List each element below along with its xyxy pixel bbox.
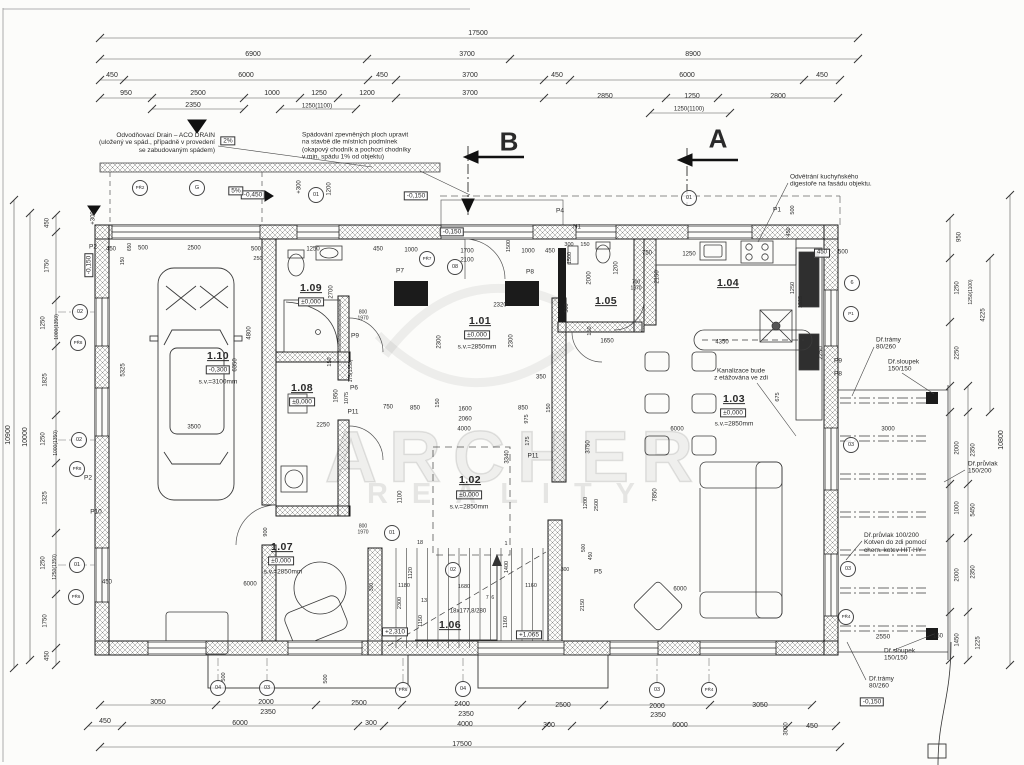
- dim-label: 950: [957, 232, 964, 242]
- axis-marker: PŘ6: [395, 682, 411, 698]
- dim-label: 2000: [955, 441, 962, 454]
- dim-label: 2300: [437, 335, 444, 348]
- dim-label: 6000: [238, 72, 254, 80]
- dim-label: s.v.=2850mm: [715, 420, 754, 427]
- dim-label: ±0,000: [289, 397, 315, 406]
- axis-marker: 6: [844, 275, 860, 291]
- dim-label: 1250: [41, 316, 48, 329]
- dim-label: 13: [421, 598, 427, 604]
- dim-label: 450: [99, 718, 111, 726]
- dim-label: N1: [573, 225, 581, 232]
- dim-label: 2350: [185, 102, 201, 110]
- dim-label: 17500: [468, 30, 487, 38]
- room-1-10: 1.10: [207, 351, 229, 363]
- dim-label: 450: [589, 552, 595, 560]
- dim-label: 1600: [458, 407, 471, 414]
- dim-label: 850: [410, 406, 420, 413]
- dim-label: 1250: [311, 90, 327, 98]
- dim-label: 150: [327, 357, 333, 366]
- dim-label: 5450: [971, 503, 978, 516]
- axis-marker: 03: [649, 682, 665, 698]
- dim-label: 6000: [672, 722, 688, 730]
- dim-label: 2320: [493, 303, 506, 310]
- dim-label: 3000: [881, 427, 894, 434]
- dim-label: P11: [347, 408, 358, 415]
- elevation-mark: -0,300: [206, 365, 230, 374]
- room-1-01: 1.01: [469, 316, 491, 328]
- dim-label: 350: [536, 375, 546, 382]
- dim-label: 1250(1100): [302, 104, 332, 111]
- axis-marker: P1: [843, 306, 859, 322]
- dim-label: 150: [580, 242, 589, 248]
- dim-label: 1250(1350): [53, 554, 59, 580]
- dim-label: 1000: [404, 248, 417, 255]
- dim-label: 1000: [521, 249, 534, 256]
- dim-label: 3050: [752, 702, 768, 710]
- dim-label: 10900: [5, 425, 13, 444]
- dim-label: 950: [120, 90, 132, 98]
- dim-label: 2300: [509, 334, 516, 347]
- dim-label: 2250: [819, 346, 826, 359]
- dim-label: 1325: [798, 296, 804, 308]
- axis-marker: PŘ4: [701, 682, 717, 698]
- room-1-09: 1.09: [300, 283, 322, 295]
- dim-label: 2400: [454, 701, 470, 709]
- dim-label: 675: [775, 392, 781, 401]
- dim-label: 1700: [460, 249, 473, 256]
- dim-label: 2250: [955, 346, 962, 359]
- room-1-05: 1.05: [595, 296, 617, 308]
- slope-mark: 5%: [228, 186, 243, 195]
- dim-label: 450: [102, 580, 112, 587]
- dim-label: P8: [526, 268, 534, 275]
- dim-label: 1750: [43, 614, 50, 627]
- dim-label: 750: [383, 405, 393, 412]
- dim-label: 1500: [506, 240, 512, 252]
- dim-label: 2000: [258, 699, 274, 707]
- dim-label: 2500: [555, 702, 571, 710]
- dim-label: 2850: [597, 93, 613, 101]
- dim-label: 800 1970: [357, 524, 368, 535]
- dim-label: 500: [221, 672, 227, 681]
- note-post-bottom: Dř.sloupek 150/150: [884, 648, 915, 663]
- dim-label: 1225: [976, 636, 983, 649]
- dim-label: 6000: [243, 582, 256, 589]
- dim-label: 650: [128, 243, 134, 251]
- dim-label: 750: [642, 251, 652, 258]
- floor-plan-page: 1750069003700890045060004503700450600045…: [0, 0, 1024, 765]
- dim-label: 3700: [462, 90, 478, 98]
- dim-label: 2150: [655, 270, 662, 283]
- dim-label: 500: [838, 250, 848, 257]
- dim-label: 3050: [150, 699, 166, 707]
- dim-label: 450: [816, 72, 828, 80]
- axis-marker: PŘ2: [132, 180, 148, 196]
- axis-marker: 01: [681, 190, 697, 206]
- room-1-06: 1.06: [439, 620, 461, 632]
- dim-label: 10800: [998, 430, 1006, 449]
- dim-label: 2500: [351, 700, 367, 708]
- axis-marker: PŘ6: [68, 589, 84, 605]
- dim-label: 4350: [715, 340, 728, 347]
- dim-label: 7 6: [486, 596, 494, 602]
- dim-label: 1000(1350): [55, 314, 61, 340]
- dim-label: 1160: [525, 583, 537, 589]
- dim-label: 450: [106, 72, 118, 80]
- axis-marker: 04: [210, 680, 226, 696]
- dim-label: 150: [587, 326, 593, 335]
- elevation-mark: -0,150: [404, 191, 428, 200]
- dim-label: 500: [323, 674, 329, 683]
- dim-label: s.v.=2850mm: [458, 343, 497, 350]
- dim-label: 1120: [408, 567, 414, 579]
- dim-label: s.v.=2850mm: [264, 568, 303, 575]
- dim-label: 1200: [359, 90, 375, 98]
- label-layer: 1750069003700890045060004503700450600045…: [0, 0, 1024, 765]
- note-paving: Spádování zpevněných ploch upravit na st…: [302, 131, 411, 160]
- dim-label: 10000: [22, 427, 30, 446]
- axis-marker: 03: [843, 437, 859, 453]
- dim-label: 6900: [245, 51, 261, 59]
- section-b-letter: B: [500, 127, 519, 156]
- dim-label: P6: [350, 384, 358, 391]
- dim-label: 2800: [770, 93, 786, 101]
- dim-label: 2500: [187, 246, 200, 253]
- dim-label: 1400: [504, 561, 510, 573]
- dim-label: 2500: [190, 90, 206, 98]
- dim-label: 5325: [121, 363, 128, 376]
- axis-marker: PŘ8: [69, 461, 85, 477]
- elevation-mark: -0,450: [241, 190, 265, 199]
- dim-label: 450: [786, 227, 792, 236]
- dim-label: 450: [45, 651, 52, 661]
- dim-label: 500: [564, 303, 570, 312]
- dim-label: 1200: [327, 182, 334, 195]
- dim-label: P7: [396, 267, 404, 274]
- dim-label: 450: [806, 723, 818, 731]
- dim-label: P1: [773, 206, 781, 213]
- dim-label: 175(1350): [349, 360, 355, 383]
- dim-label: P8: [834, 370, 842, 377]
- axis-marker: 01: [308, 187, 324, 203]
- dim-label: 6000: [679, 72, 695, 80]
- dim-label: 1250: [41, 556, 48, 569]
- dim-label: 1250: [682, 252, 695, 259]
- dim-label: 2700: [329, 285, 336, 298]
- dim-label: 450: [106, 247, 116, 254]
- dim-label: 1680: [458, 584, 470, 590]
- dim-label: 2550: [876, 633, 890, 640]
- room-1-04: 1.04: [717, 278, 739, 290]
- note-beams-top: Dř.trámy 80/260: [876, 337, 901, 352]
- dim-label: 500: [582, 544, 588, 552]
- elevation-mark: -0,150: [860, 697, 884, 706]
- axis-marker: 01: [69, 557, 85, 573]
- slope-mark: 2%: [220, 136, 235, 145]
- dim-label: P5: [594, 568, 602, 575]
- dim-label: 17500: [452, 741, 471, 749]
- dim-label: 300: [543, 722, 555, 730]
- dim-label: 1: [504, 541, 507, 547]
- dim-label: +300: [297, 180, 304, 194]
- dim-label: 6000: [232, 720, 248, 728]
- dim-label: 2350: [971, 565, 978, 578]
- dim-label: 500: [790, 205, 796, 214]
- dim-label: P9: [834, 357, 842, 364]
- dim-label: 3000: [784, 722, 791, 735]
- watermark-text: REALITY: [367, 478, 659, 510]
- dim-label: 1180: [398, 583, 410, 589]
- dim-label: 2000: [955, 568, 962, 581]
- axis-marker: 01: [384, 525, 400, 541]
- section-a-letter: A: [709, 124, 728, 153]
- dim-label: 800 1970: [357, 310, 368, 321]
- dim-label: 1000(1350): [54, 430, 60, 456]
- dim-label: 2150: [580, 599, 586, 611]
- dim-label: 1250: [306, 247, 319, 254]
- dim-label: 2350: [260, 709, 276, 717]
- dim-label: 150: [435, 398, 441, 407]
- dim-label: 2000: [649, 703, 665, 711]
- dim-label: 4800: [247, 326, 254, 339]
- dim-label: 4225: [981, 308, 988, 321]
- dim-label: 18: [417, 540, 423, 546]
- dim-label: 1950: [334, 389, 341, 402]
- dim-label: P4: [556, 207, 564, 214]
- dim-label: 1450: [955, 633, 962, 646]
- dim-label: 3700: [459, 51, 475, 59]
- dim-label: 1150: [418, 615, 424, 627]
- dim-label: 150: [933, 634, 943, 641]
- dim-label: 2350: [458, 711, 474, 719]
- dim-label: 450: [545, 249, 555, 256]
- note-post-top: Dř.sloupek 150/150: [888, 359, 919, 374]
- dim-label: 500: [251, 247, 261, 254]
- note-beams-bottom: Dř.trámy 80/260: [869, 676, 894, 691]
- dim-label: ±0,000: [464, 330, 490, 339]
- note-kitchen-vent: Odvětrání kuchyňského digestoře na fasád…: [790, 174, 872, 189]
- dim-label: 1250: [684, 93, 700, 101]
- dim-label: 1000: [955, 501, 962, 514]
- dim-label: 1250(1100): [674, 107, 704, 114]
- axis-marker: 03: [259, 680, 275, 696]
- dim-label: ±0,000: [720, 408, 746, 417]
- dim-label: P2: [84, 474, 92, 481]
- dim-label: P10: [90, 508, 102, 515]
- dim-label: 300: [564, 242, 573, 248]
- dim-label: 450: [551, 72, 563, 80]
- dim-label: 250: [253, 256, 262, 262]
- dim-label: s.v.=3100mm: [199, 378, 238, 385]
- dim-label: P2: [89, 243, 97, 250]
- dim-label: 300: [561, 568, 569, 574]
- dim-label: 1500: [567, 252, 573, 264]
- dim-label: 300: [365, 720, 377, 728]
- dim-label: 1000: [264, 90, 280, 98]
- dim-label: 1250: [41, 432, 48, 445]
- room-1-03: 1.03: [723, 394, 745, 406]
- dim-label: 150: [546, 403, 552, 412]
- dim-label: 1825: [43, 373, 50, 386]
- elevation-mark: +2,310: [382, 627, 408, 636]
- elevation-mark: -0,150: [84, 253, 93, 277]
- elevation-mark: -0,150: [440, 227, 464, 236]
- dim-label: 450: [814, 249, 830, 258]
- dim-label: 850: [518, 406, 528, 413]
- dim-label: 1750: [45, 259, 52, 272]
- dim-label: 18x177,8/280: [450, 609, 486, 616]
- axis-marker: 02: [71, 432, 87, 448]
- dim-label: 150: [121, 257, 127, 265]
- dim-label: 1325: [43, 491, 50, 504]
- dim-label: ±0,000: [298, 297, 324, 306]
- dim-label: P9: [351, 332, 359, 339]
- dim-label: 450: [373, 247, 383, 254]
- dim-label: 450: [45, 218, 52, 228]
- dim-label: 2350: [650, 712, 666, 720]
- axis-marker: PŘ7: [419, 251, 435, 267]
- dim-label: 300: [370, 583, 376, 591]
- axis-marker: 04: [455, 681, 471, 697]
- dim-label: 2000: [587, 271, 594, 284]
- axis-marker: PŘ8: [70, 335, 86, 351]
- dim-label: 1250(1100): [969, 279, 975, 304]
- note-drain: Odvodňovací Drain – ACO DRAIN (uložený v…: [99, 132, 215, 154]
- axis-marker: 03: [840, 561, 856, 577]
- note-girder-2: Dř.průvlak 100/200 Kotven do zdi pomocí …: [864, 532, 927, 554]
- dim-label: 6000: [673, 587, 686, 594]
- dim-label: 3500: [187, 425, 200, 432]
- dim-label: 2100: [460, 258, 473, 265]
- elevation-mark: +1,065: [516, 630, 542, 639]
- dim-label: 900: [263, 527, 269, 536]
- axis-marker: G: [189, 180, 205, 196]
- dim-label: 1160: [503, 616, 509, 628]
- axis-marker: 02: [445, 562, 461, 578]
- dim-label: 2350: [971, 443, 978, 456]
- dim-label: 450: [376, 72, 388, 80]
- dim-label: 3700: [462, 72, 478, 80]
- axis-marker: 02: [72, 304, 88, 320]
- dim-label: 1250: [790, 282, 796, 294]
- dim-label: 4000: [457, 721, 473, 729]
- dim-label: 1075: [344, 392, 350, 404]
- dim-label: +300: [91, 211, 98, 225]
- dim-label: 1250: [955, 281, 962, 294]
- axis-marker: PŘ4: [838, 609, 854, 625]
- note-sewage: Kanalizace bude z etážována ve zdi: [714, 368, 768, 383]
- dim-label: 500: [138, 246, 148, 253]
- room-1-07: 1.07: [271, 542, 293, 554]
- dim-label: 1650: [600, 339, 613, 346]
- note-girder-1: Dř.průvlak 150/200: [968, 461, 998, 476]
- dim-label: 6350: [233, 358, 240, 371]
- dim-label: 2300: [397, 597, 403, 609]
- room-1-08: 1.08: [291, 383, 313, 395]
- dim-label: 8900: [685, 51, 701, 59]
- dim-label: 700 1970: [630, 280, 641, 291]
- dim-label: 1200: [614, 261, 621, 274]
- dim-label: ±0,000: [268, 556, 294, 565]
